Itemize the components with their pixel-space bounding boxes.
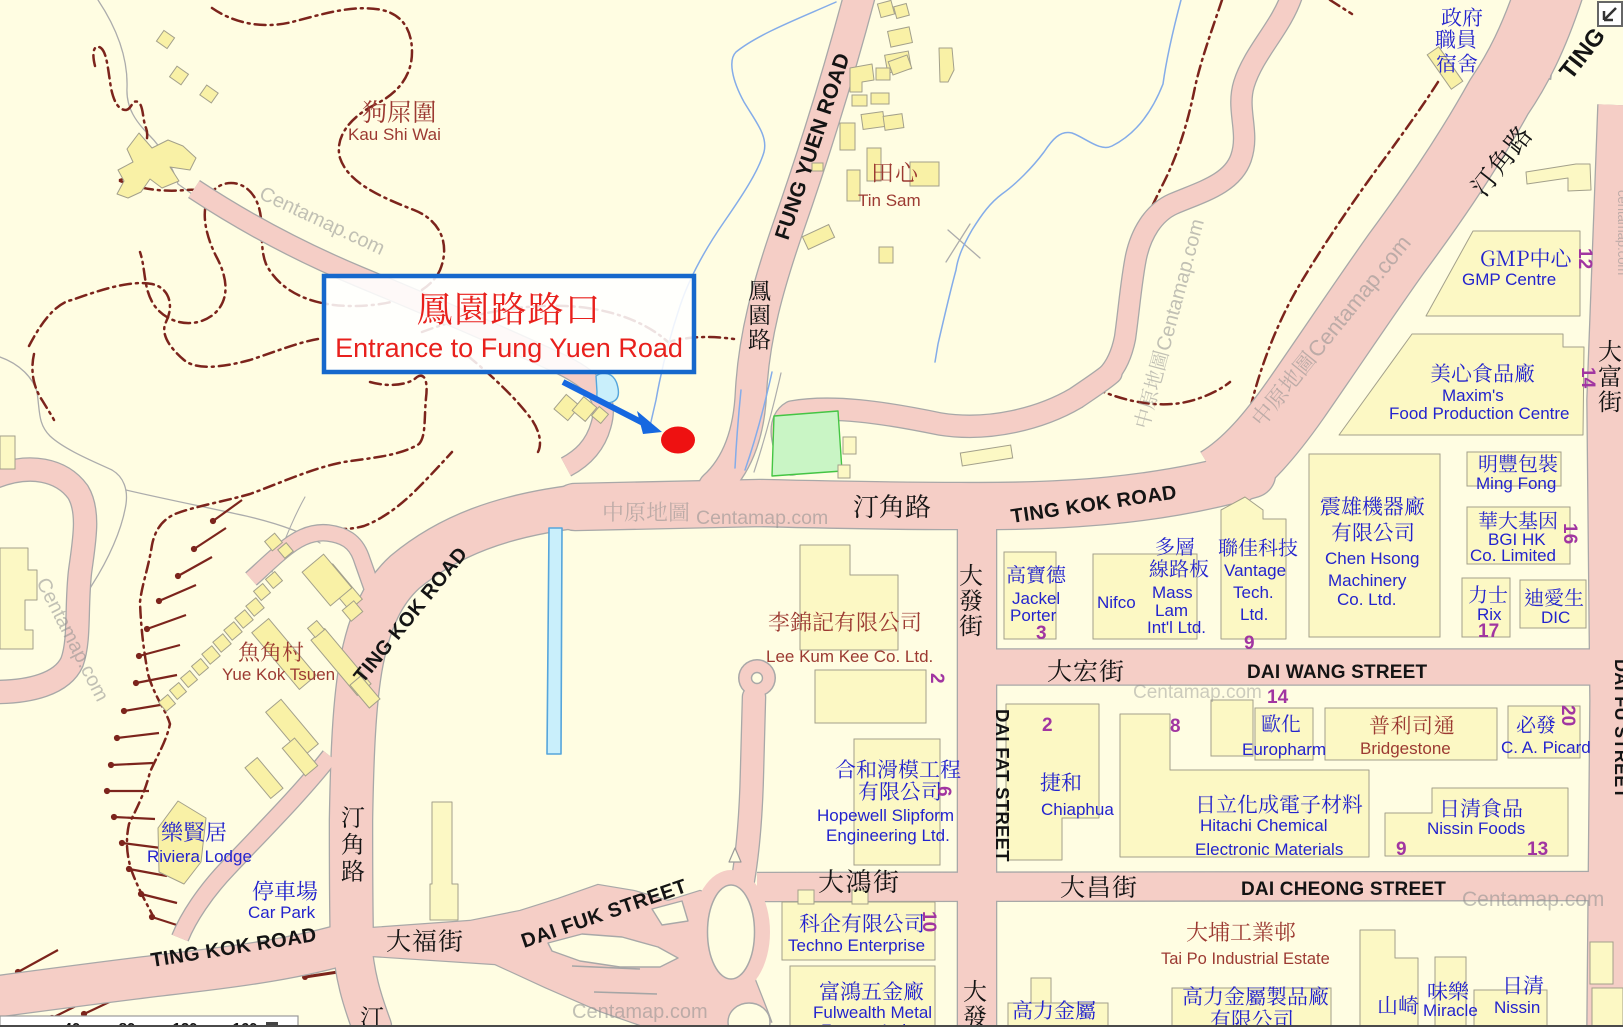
svg-text:Techno Enterprise: Techno Enterprise — [788, 936, 925, 955]
svg-text:Hitachi Chemical: Hitachi Chemical — [1200, 816, 1328, 835]
svg-text:DAI FU STREET: DAI FU STREET — [1611, 659, 1623, 799]
svg-text:Nifco: Nifco — [1097, 593, 1136, 612]
svg-text:DAI WANG STREET: DAI WANG STREET — [1247, 662, 1428, 683]
svg-text:Bridgestone: Bridgestone — [1360, 739, 1451, 758]
svg-text:Electronic Materials: Electronic Materials — [1195, 840, 1343, 859]
svg-text:14: 14 — [1267, 687, 1289, 708]
svg-text:Europharm: Europharm — [1242, 740, 1326, 759]
svg-text:9: 9 — [1396, 839, 1407, 860]
svg-text:Riviera Lodge: Riviera Lodge — [147, 847, 252, 866]
svg-text:DIC: DIC — [1541, 608, 1570, 627]
svg-text:DAI CHEONG STREET: DAI CHEONG STREET — [1241, 879, 1446, 900]
svg-text:Engineering Ltd.: Engineering Ltd. — [826, 826, 950, 845]
svg-text:Hopewell Slipform: Hopewell Slipform — [817, 806, 954, 825]
svg-text:Centamap.com: Centamap.com — [1133, 682, 1262, 703]
svg-text:2: 2 — [926, 673, 947, 684]
svg-text:10: 10 — [918, 911, 939, 932]
svg-text:13: 13 — [1527, 839, 1548, 860]
svg-text:20: 20 — [1557, 705, 1578, 726]
svg-text:Lee Kum Kee Co. Ltd.: Lee Kum Kee Co. Ltd. — [766, 647, 933, 666]
svg-text:2: 2 — [1042, 715, 1053, 736]
svg-text:Tech.: Tech. — [1233, 583, 1274, 602]
svg-text:DAI FAT STREET: DAI FAT STREET — [992, 709, 1013, 862]
svg-text:16: 16 — [1559, 523, 1580, 544]
svg-text:Centamap.com: Centamap.com — [696, 507, 828, 529]
svg-text:12: 12 — [1574, 248, 1595, 269]
svg-text:Ming Fong: Ming Fong — [1476, 474, 1556, 493]
svg-text:Int'l Ltd.: Int'l Ltd. — [1147, 618, 1206, 637]
svg-text:Ltd.: Ltd. — [1240, 605, 1268, 624]
svg-text:Machinery: Machinery — [1328, 571, 1407, 590]
svg-text:Car Park: Car Park — [248, 903, 316, 922]
svg-text:Chiaphua: Chiaphua — [1041, 800, 1114, 819]
svg-text:Centamap.com: Centamap.com — [1462, 888, 1604, 911]
svg-text:centamap.com: centamap.com — [1615, 190, 1623, 275]
svg-text:Vantage: Vantage — [1224, 561, 1286, 580]
svg-text:Nissin: Nissin — [1494, 998, 1540, 1017]
svg-text:GMP Centre: GMP Centre — [1462, 270, 1556, 289]
svg-text:14: 14 — [1577, 367, 1598, 389]
svg-text:9: 9 — [1244, 633, 1255, 654]
svg-text:Chen Hsong: Chen Hsong — [1325, 549, 1420, 568]
svg-text:Entrance to Fung Yuen Road: Entrance to Fung Yuen Road — [335, 333, 683, 363]
svg-text:Mass: Mass — [1152, 583, 1193, 602]
svg-text:Co. Limited: Co. Limited — [1470, 546, 1556, 565]
svg-text:Porter: Porter — [1010, 606, 1057, 625]
svg-text:Tai Po Industrial Estate: Tai Po Industrial Estate — [1161, 950, 1330, 968]
svg-text:C. A. Picard: C. A. Picard — [1501, 738, 1591, 757]
svg-text:Kau Shi Wai: Kau Shi Wai — [348, 125, 441, 144]
svg-text:Miracle: Miracle — [1423, 1001, 1478, 1020]
svg-text:17: 17 — [1478, 621, 1499, 642]
svg-text:Nissin Foods: Nissin Foods — [1427, 819, 1525, 838]
svg-text:Tin Sam: Tin Sam — [858, 191, 921, 210]
svg-text:Maxim's: Maxim's — [1442, 386, 1504, 405]
svg-text:Co. Ltd.: Co. Ltd. — [1337, 590, 1397, 609]
svg-text:Fulwealth Metal: Fulwealth Metal — [813, 1003, 932, 1022]
svg-text:Yue Kok Tsuen: Yue Kok Tsuen — [222, 665, 335, 684]
svg-text:6: 6 — [933, 786, 954, 797]
svg-text:8: 8 — [1170, 716, 1181, 737]
svg-text:Food Production Centre: Food Production Centre — [1389, 404, 1570, 423]
svg-text:Centamap.com: Centamap.com — [572, 1001, 708, 1023]
svg-text:3: 3 — [1036, 623, 1047, 644]
